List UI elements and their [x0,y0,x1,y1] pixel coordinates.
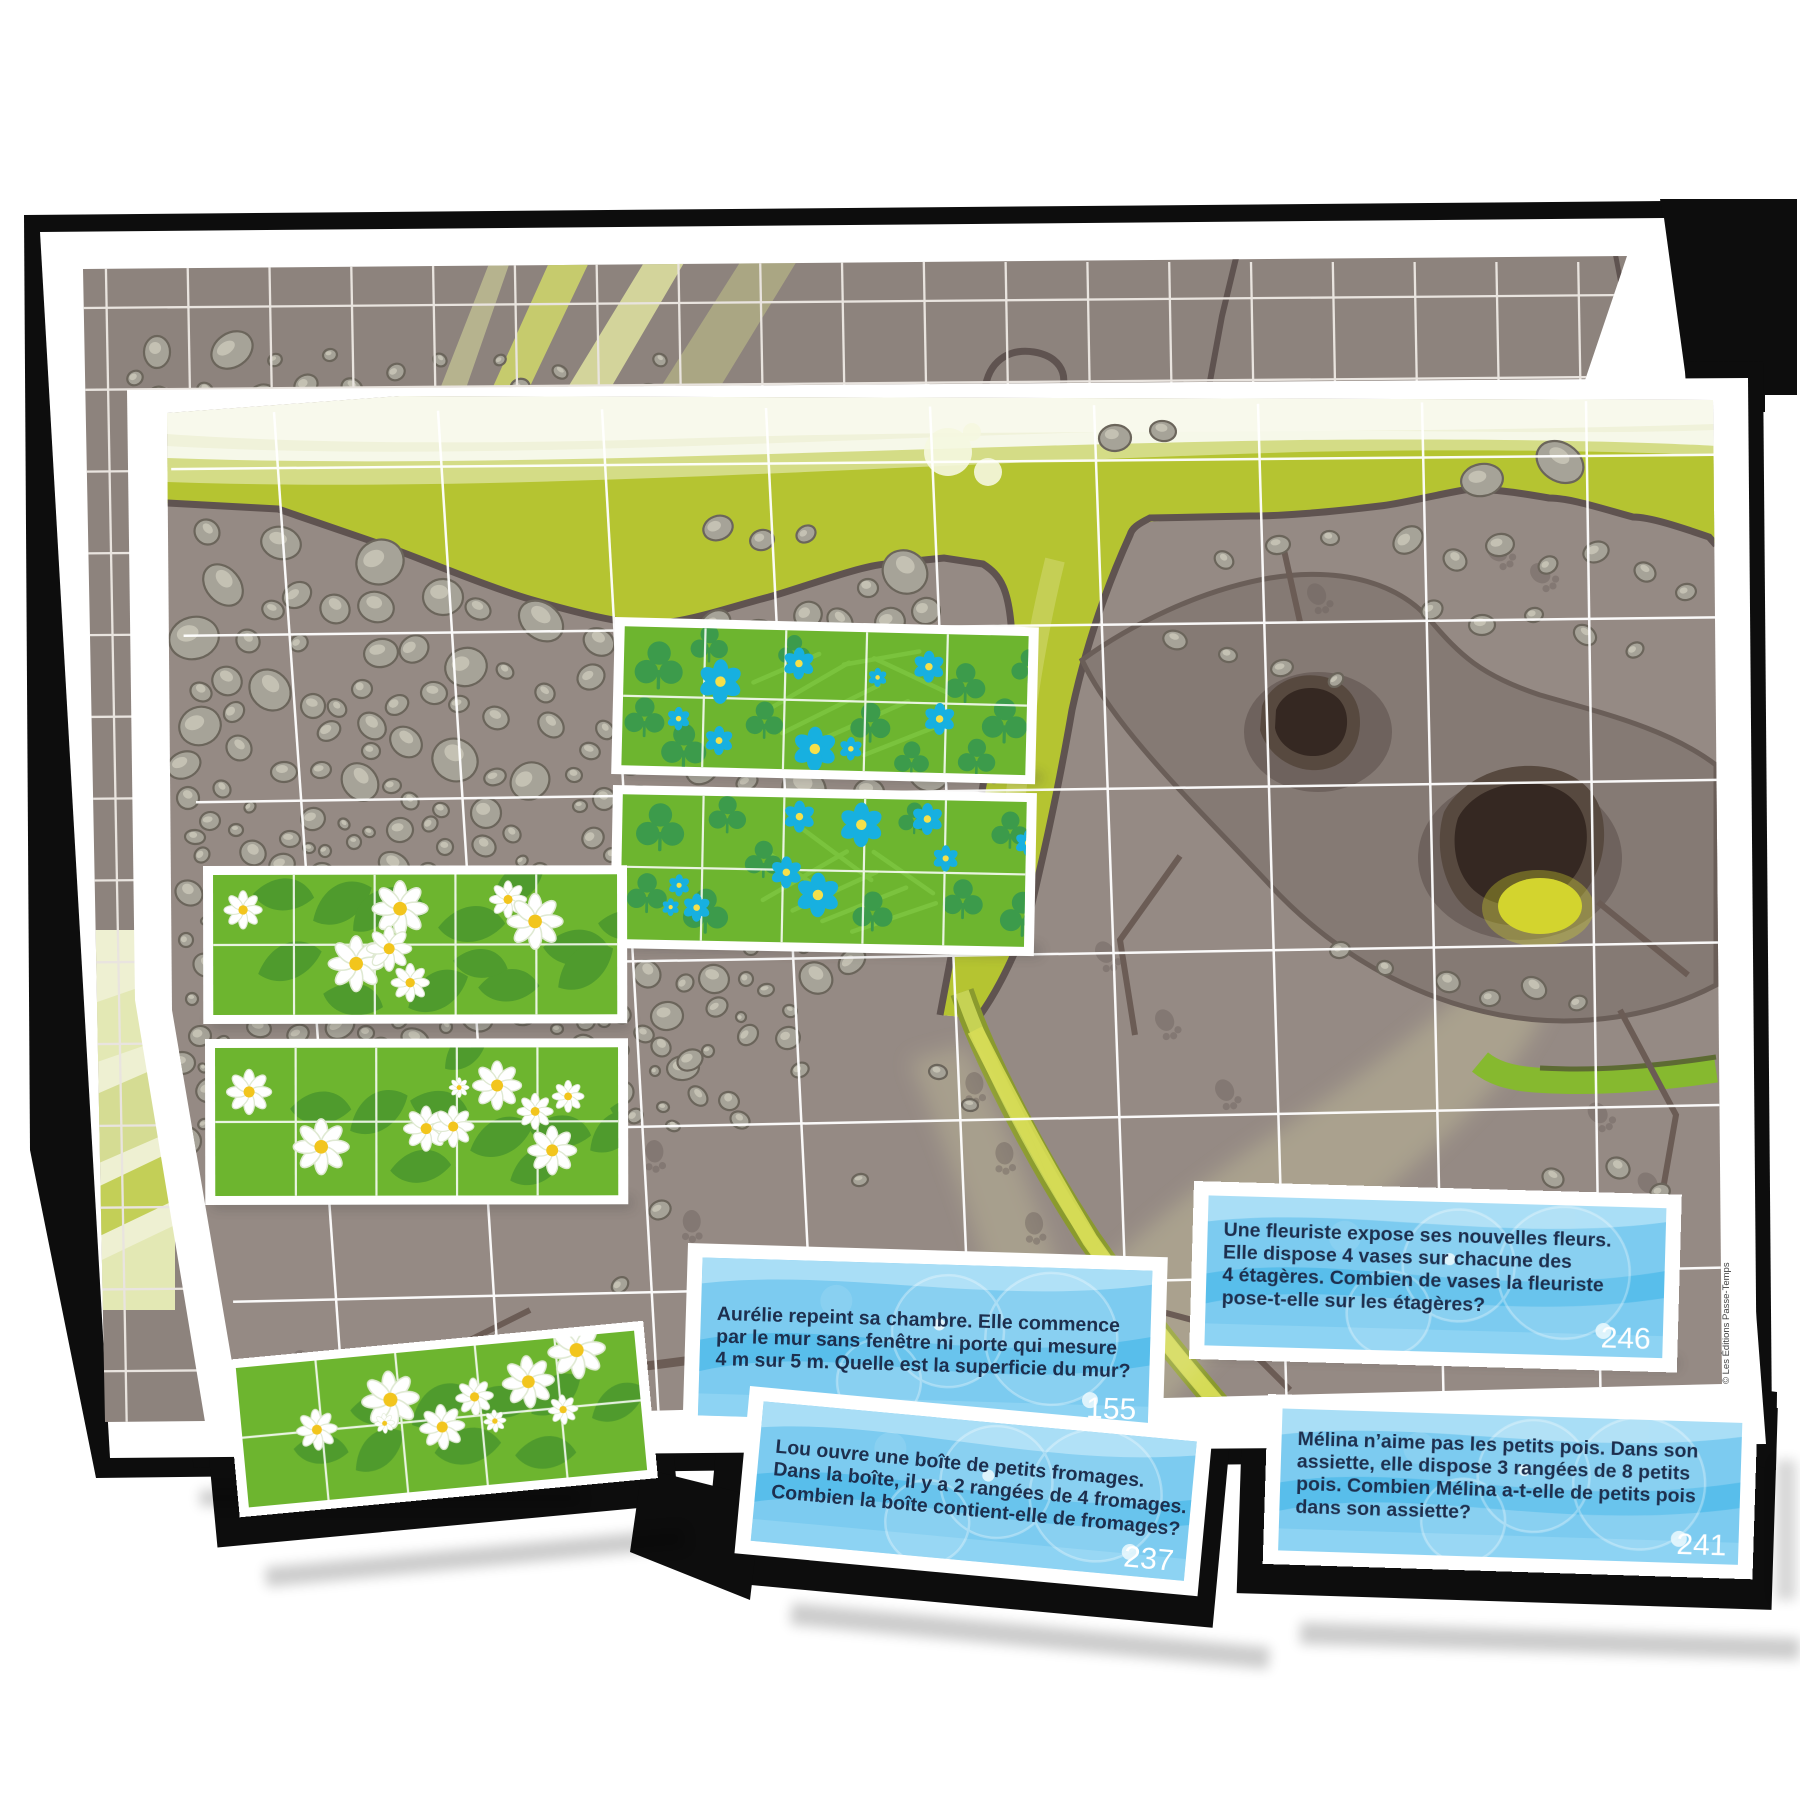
svg-text:241: 241 [1676,1528,1727,1563]
svg-text:237: 237 [1122,1540,1175,1577]
svg-text:© Les Éditions Passe-Temps: © Les Éditions Passe-Temps [1721,1262,1732,1384]
svg-text:246: 246 [1600,1321,1651,1355]
svg-text:Aurélie repeint sa chambre. El: Aurélie repeint sa chambre. Elle commenc… [715,1303,1132,1382]
